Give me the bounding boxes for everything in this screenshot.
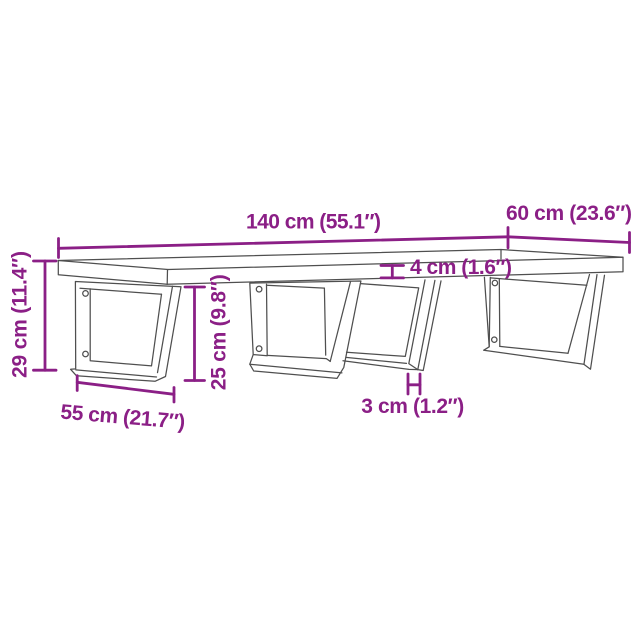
svg-text:55 cm (21.7″): 55 cm (21.7″) xyxy=(60,401,186,434)
svg-text:25 cm (9.8″): 25 cm (9.8″) xyxy=(208,274,231,390)
svg-text:3 cm (1.2″): 3 cm (1.2″) xyxy=(361,395,464,418)
svg-text:60 cm (23.6″): 60 cm (23.6″) xyxy=(506,202,632,225)
svg-text:140 cm (55.1″): 140 cm (55.1″) xyxy=(246,210,381,233)
svg-text:29 cm (11.4″): 29 cm (11.4″) xyxy=(9,251,32,378)
svg-text:4 cm (1.6″): 4 cm (1.6″) xyxy=(410,256,512,279)
